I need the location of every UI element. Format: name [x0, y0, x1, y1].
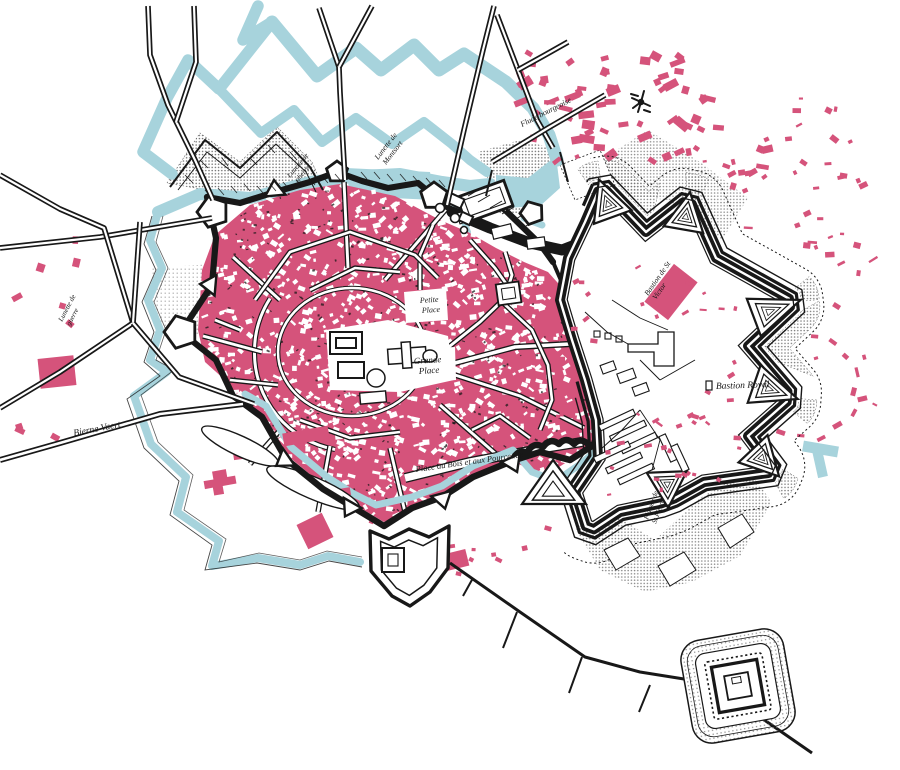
- svg-text:Petite: Petite: [419, 295, 440, 305]
- svg-text:Place: Place: [417, 365, 439, 376]
- svg-text:Place: Place: [421, 305, 441, 315]
- svg-text:Bastion Royal: Bastion Royal: [716, 380, 770, 392]
